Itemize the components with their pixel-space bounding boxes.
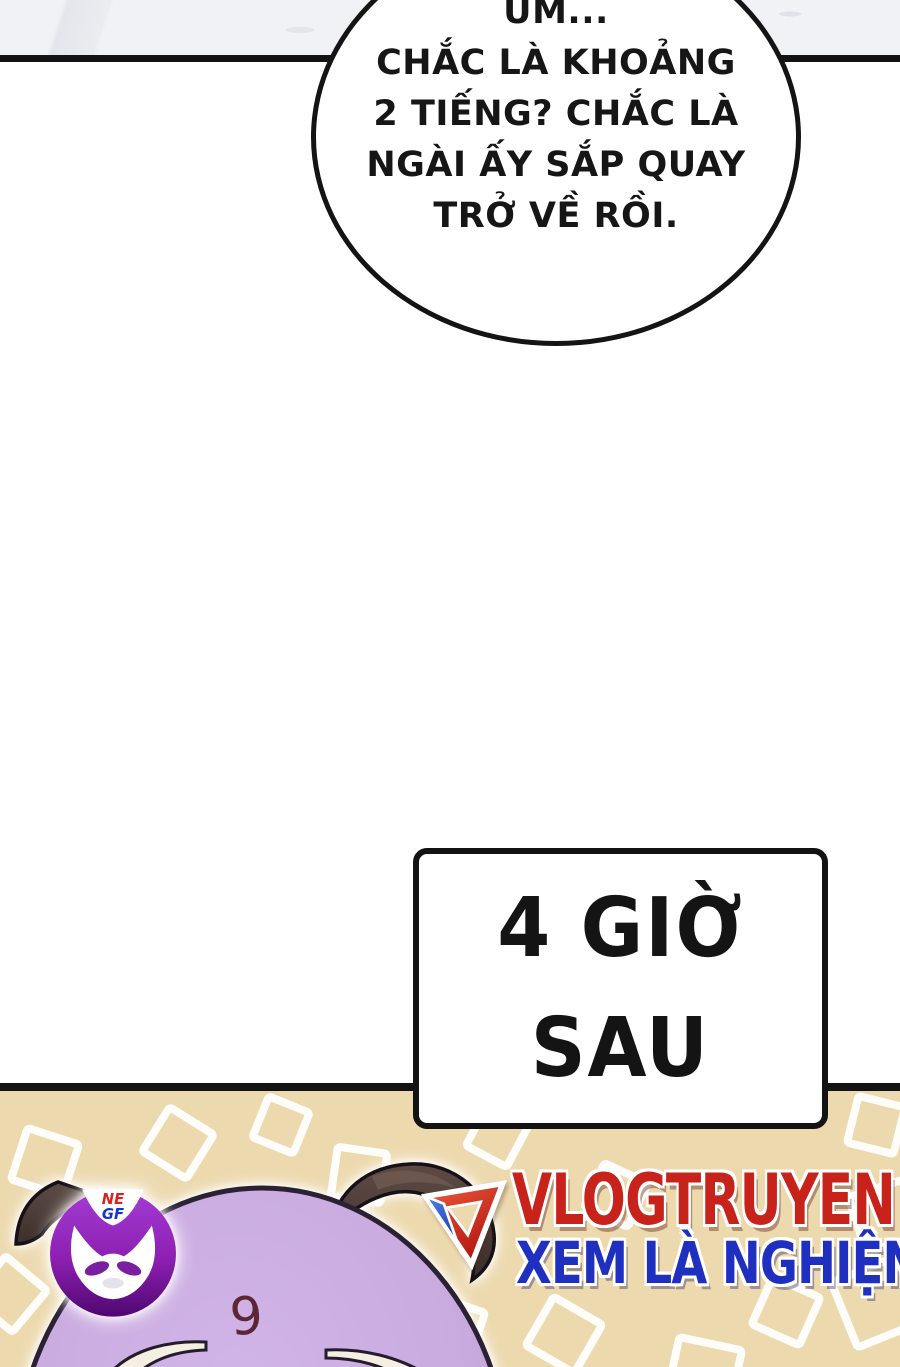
speech-bubble: UM... CHẮC LÀ KHOẢNG 2 TIẾNG? CHẮC LÀ NG… [311,0,801,346]
caption-box: 4 GIỜ SAU [413,848,828,1129]
watermark-tagline: XEM LÀ NGHIỆN [516,1232,900,1294]
bubble-line: UM... [316,0,796,38]
caption-line: 4 GIỜ [497,869,744,989]
badge-muzzle-shade [102,1278,123,1289]
bubble-line: NGÀI ẤY SẮP QUAY [316,140,796,191]
badge-text-blue: GF [102,1206,124,1223]
bubble-line: 2 TIẾNG? CHẮC LÀ [316,89,796,140]
mascot-badge-icon: NE GF [46,1184,180,1318]
comic-page: 9 NE GF [0,0,900,1367]
watermark: VLOGTRUYEN XEM LÀ NGHIỆN [420,1168,890,1318]
bubble-line: TRỞ VỀ RỒI. [316,191,796,242]
watermark-title: VLOGTRUYEN [512,1168,895,1232]
watermark-logo-icon [420,1176,512,1272]
bubble-line: CHẮC LÀ KHOẢNG [316,38,796,89]
caption-line: SAU [531,989,710,1109]
character-forehead-mark: 9 [228,1286,265,1348]
speech-bubble-text: UM... CHẮC LÀ KHOẢNG 2 TIẾNG? CHẮC LÀ NG… [316,0,796,242]
